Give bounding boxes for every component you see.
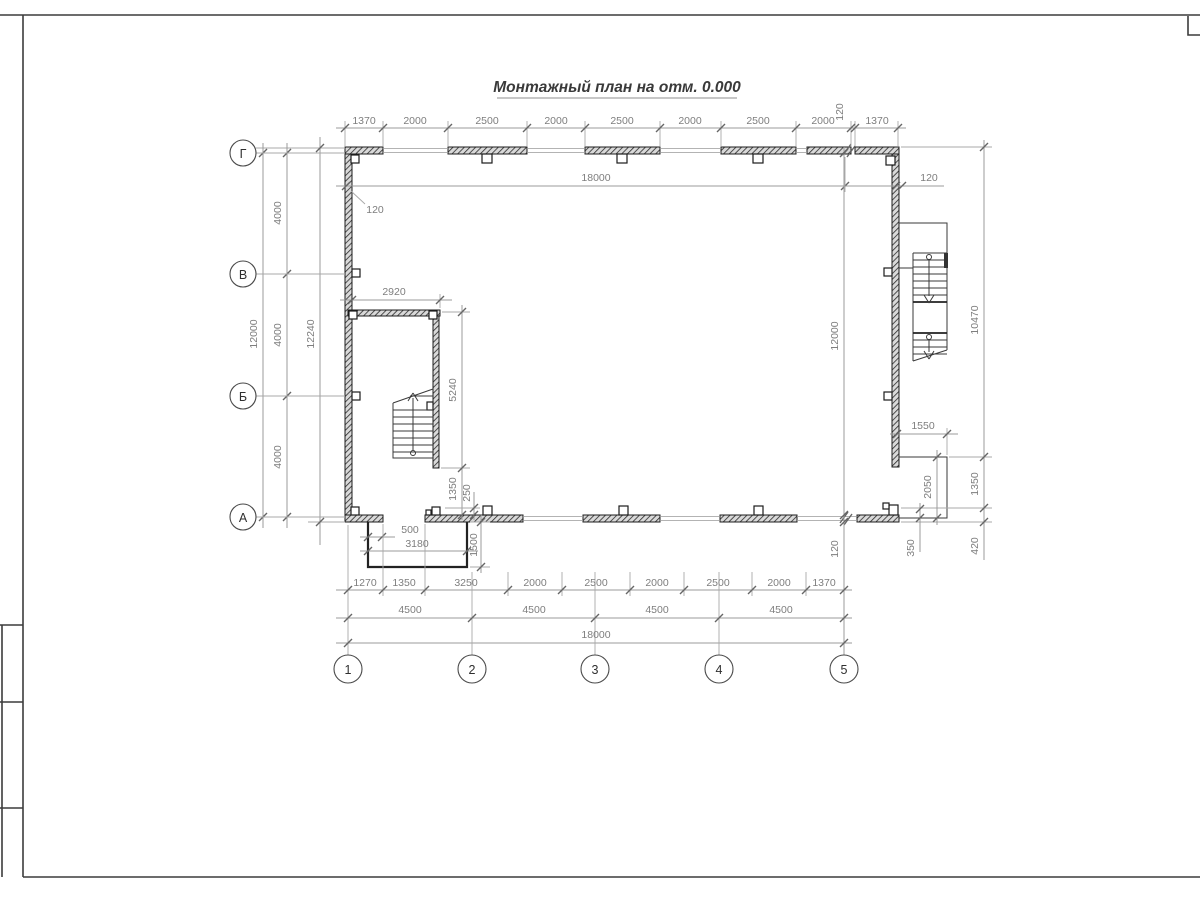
axis-label: Г	[240, 147, 247, 161]
dim-label: 18000	[581, 629, 610, 641]
stair-landing-edges	[913, 302, 947, 333]
dim-label: 1500	[468, 533, 480, 557]
wall-top-annex	[855, 147, 899, 154]
dim-label: 2000	[645, 577, 669, 589]
wall-top-panel	[448, 147, 527, 154]
dim-label: 2000	[403, 115, 427, 127]
dim-label: 1550	[911, 420, 935, 432]
axis-label: 3	[592, 663, 599, 677]
dim-label: 1370	[812, 577, 836, 589]
title-block: Монтажный план на отм. 0.000	[493, 79, 741, 98]
stair-external	[899, 223, 948, 361]
plan-drawing: Монтажный план на отм. 0.000	[0, 0, 1200, 900]
column-mark	[351, 507, 359, 515]
stair-wall-stub	[944, 253, 948, 268]
dims-right: 12000 120 10470 1350 420 1550 2050 350	[829, 140, 992, 655]
wall-top-panel	[345, 147, 383, 154]
dim-label: 120	[366, 204, 384, 216]
dim-label: 2000	[767, 577, 791, 589]
dim-label: 1370	[352, 115, 376, 127]
frame-corner-notch	[1188, 16, 1200, 35]
dim-label: 4500	[398, 604, 422, 616]
dims-stairwell: 2920 5240 1350 250 500 3180 1500	[340, 286, 490, 596]
axis-label: В	[239, 268, 247, 282]
columns	[349, 154, 898, 515]
dim-label: 10470	[969, 305, 981, 334]
dim-label: 4500	[522, 604, 546, 616]
column-mark	[427, 402, 433, 410]
wall-stairwell-horizontal	[348, 310, 440, 316]
dim-label: 4500	[645, 604, 669, 616]
column-mark	[884, 268, 892, 276]
stair-steps	[913, 260, 947, 354]
stair-path-start	[927, 335, 932, 340]
axis-label: А	[239, 511, 248, 525]
dim-label: 500	[401, 524, 419, 536]
column-mark	[349, 311, 357, 319]
dim-label: 2500	[746, 115, 770, 127]
dim-label: 4000	[272, 323, 284, 347]
axis-label: 5	[841, 663, 848, 677]
axis-label: 1	[345, 663, 352, 677]
wall-top-panel	[721, 147, 796, 154]
dim-label: 120	[920, 172, 938, 184]
column-mark	[352, 269, 360, 277]
wall-left	[345, 148, 352, 522]
column-mark	[619, 506, 628, 515]
dim-label: 120	[834, 103, 846, 121]
dim-label: 2000	[678, 115, 702, 127]
wall-bottom-annex	[857, 515, 899, 522]
dim-label: 2920	[382, 286, 406, 298]
dims-top: 1370 2000 2500 2000 2500 2000 2500 2000 …	[336, 103, 944, 216]
sheet-frame	[0, 15, 1200, 877]
dim-label: 12240	[305, 319, 317, 348]
axis-label: 2	[469, 663, 476, 677]
dim-label: 18000	[581, 172, 610, 184]
column-mark	[889, 505, 898, 515]
dim-label: 2050	[922, 475, 934, 499]
stair-internal	[393, 389, 433, 458]
dim-label: 420	[969, 537, 981, 555]
column-mark	[351, 155, 359, 163]
page-title: Монтажный план на отм. 0.000	[493, 79, 741, 96]
dim-label: 350	[905, 539, 917, 557]
dim-label: 2000	[811, 115, 835, 127]
dim-label: 2500	[584, 577, 608, 589]
dim-label: 3250	[454, 577, 478, 589]
dim-label: 1370	[865, 115, 889, 127]
dim-label: 3180	[405, 538, 429, 550]
drawing-sheet: Монтажный план на отм. 0.000	[0, 0, 1200, 900]
stair-path-start	[927, 255, 932, 260]
dim-label: 4500	[769, 604, 793, 616]
dim-label: 2000	[523, 577, 547, 589]
column-mark	[883, 503, 889, 509]
dim-label: 2500	[475, 115, 499, 127]
wall-top-panel	[585, 147, 660, 154]
axis-label: Б	[239, 390, 247, 404]
axis-markers-cols: 1 2 3 4 5	[334, 655, 858, 683]
dim-label: 1350	[969, 472, 981, 496]
column-mark	[432, 507, 440, 515]
wall-right	[892, 147, 899, 467]
column-mark	[754, 506, 763, 515]
dim-label: 2500	[706, 577, 730, 589]
dim-label: 2500	[610, 115, 634, 127]
stair-path-start	[411, 451, 416, 456]
dim-label: 250	[461, 484, 473, 502]
dim-label: 12000	[829, 321, 841, 350]
dims-left: 12000 4000 4000 4000 12240	[248, 137, 345, 545]
dim-label: 4000	[272, 201, 284, 225]
dim-label: 1350	[447, 477, 459, 501]
dim-label: 120	[829, 540, 841, 558]
dim-label: 1270	[353, 577, 377, 589]
walls	[345, 144, 899, 525]
frame-margin-boxes	[0, 625, 23, 877]
wall-stairwell-vertical	[433, 316, 439, 468]
dim-label: 5240	[447, 378, 459, 402]
column-mark	[886, 156, 895, 165]
dim-label: 4000	[272, 445, 284, 469]
wall-bottom-panel	[720, 515, 797, 522]
column-mark	[483, 506, 492, 515]
dim-extensions	[256, 148, 345, 522]
axis-label: 4	[716, 663, 723, 677]
wall-bottom-panel	[583, 515, 660, 522]
column-mark	[352, 392, 360, 400]
column-mark	[753, 154, 763, 163]
wall-bottom-panel	[345, 515, 383, 522]
axis-lines	[256, 153, 345, 517]
column-mark	[482, 154, 492, 163]
dim-label: 1350	[392, 577, 416, 589]
dim-label: 2000	[544, 115, 568, 127]
column-mark	[429, 311, 437, 319]
dim-label: 12000	[248, 319, 260, 348]
column-mark	[884, 392, 892, 400]
column-mark	[617, 154, 627, 163]
column-mark	[426, 510, 431, 515]
dim-leader	[351, 191, 365, 204]
wall-bottom-openings	[523, 517, 857, 521]
